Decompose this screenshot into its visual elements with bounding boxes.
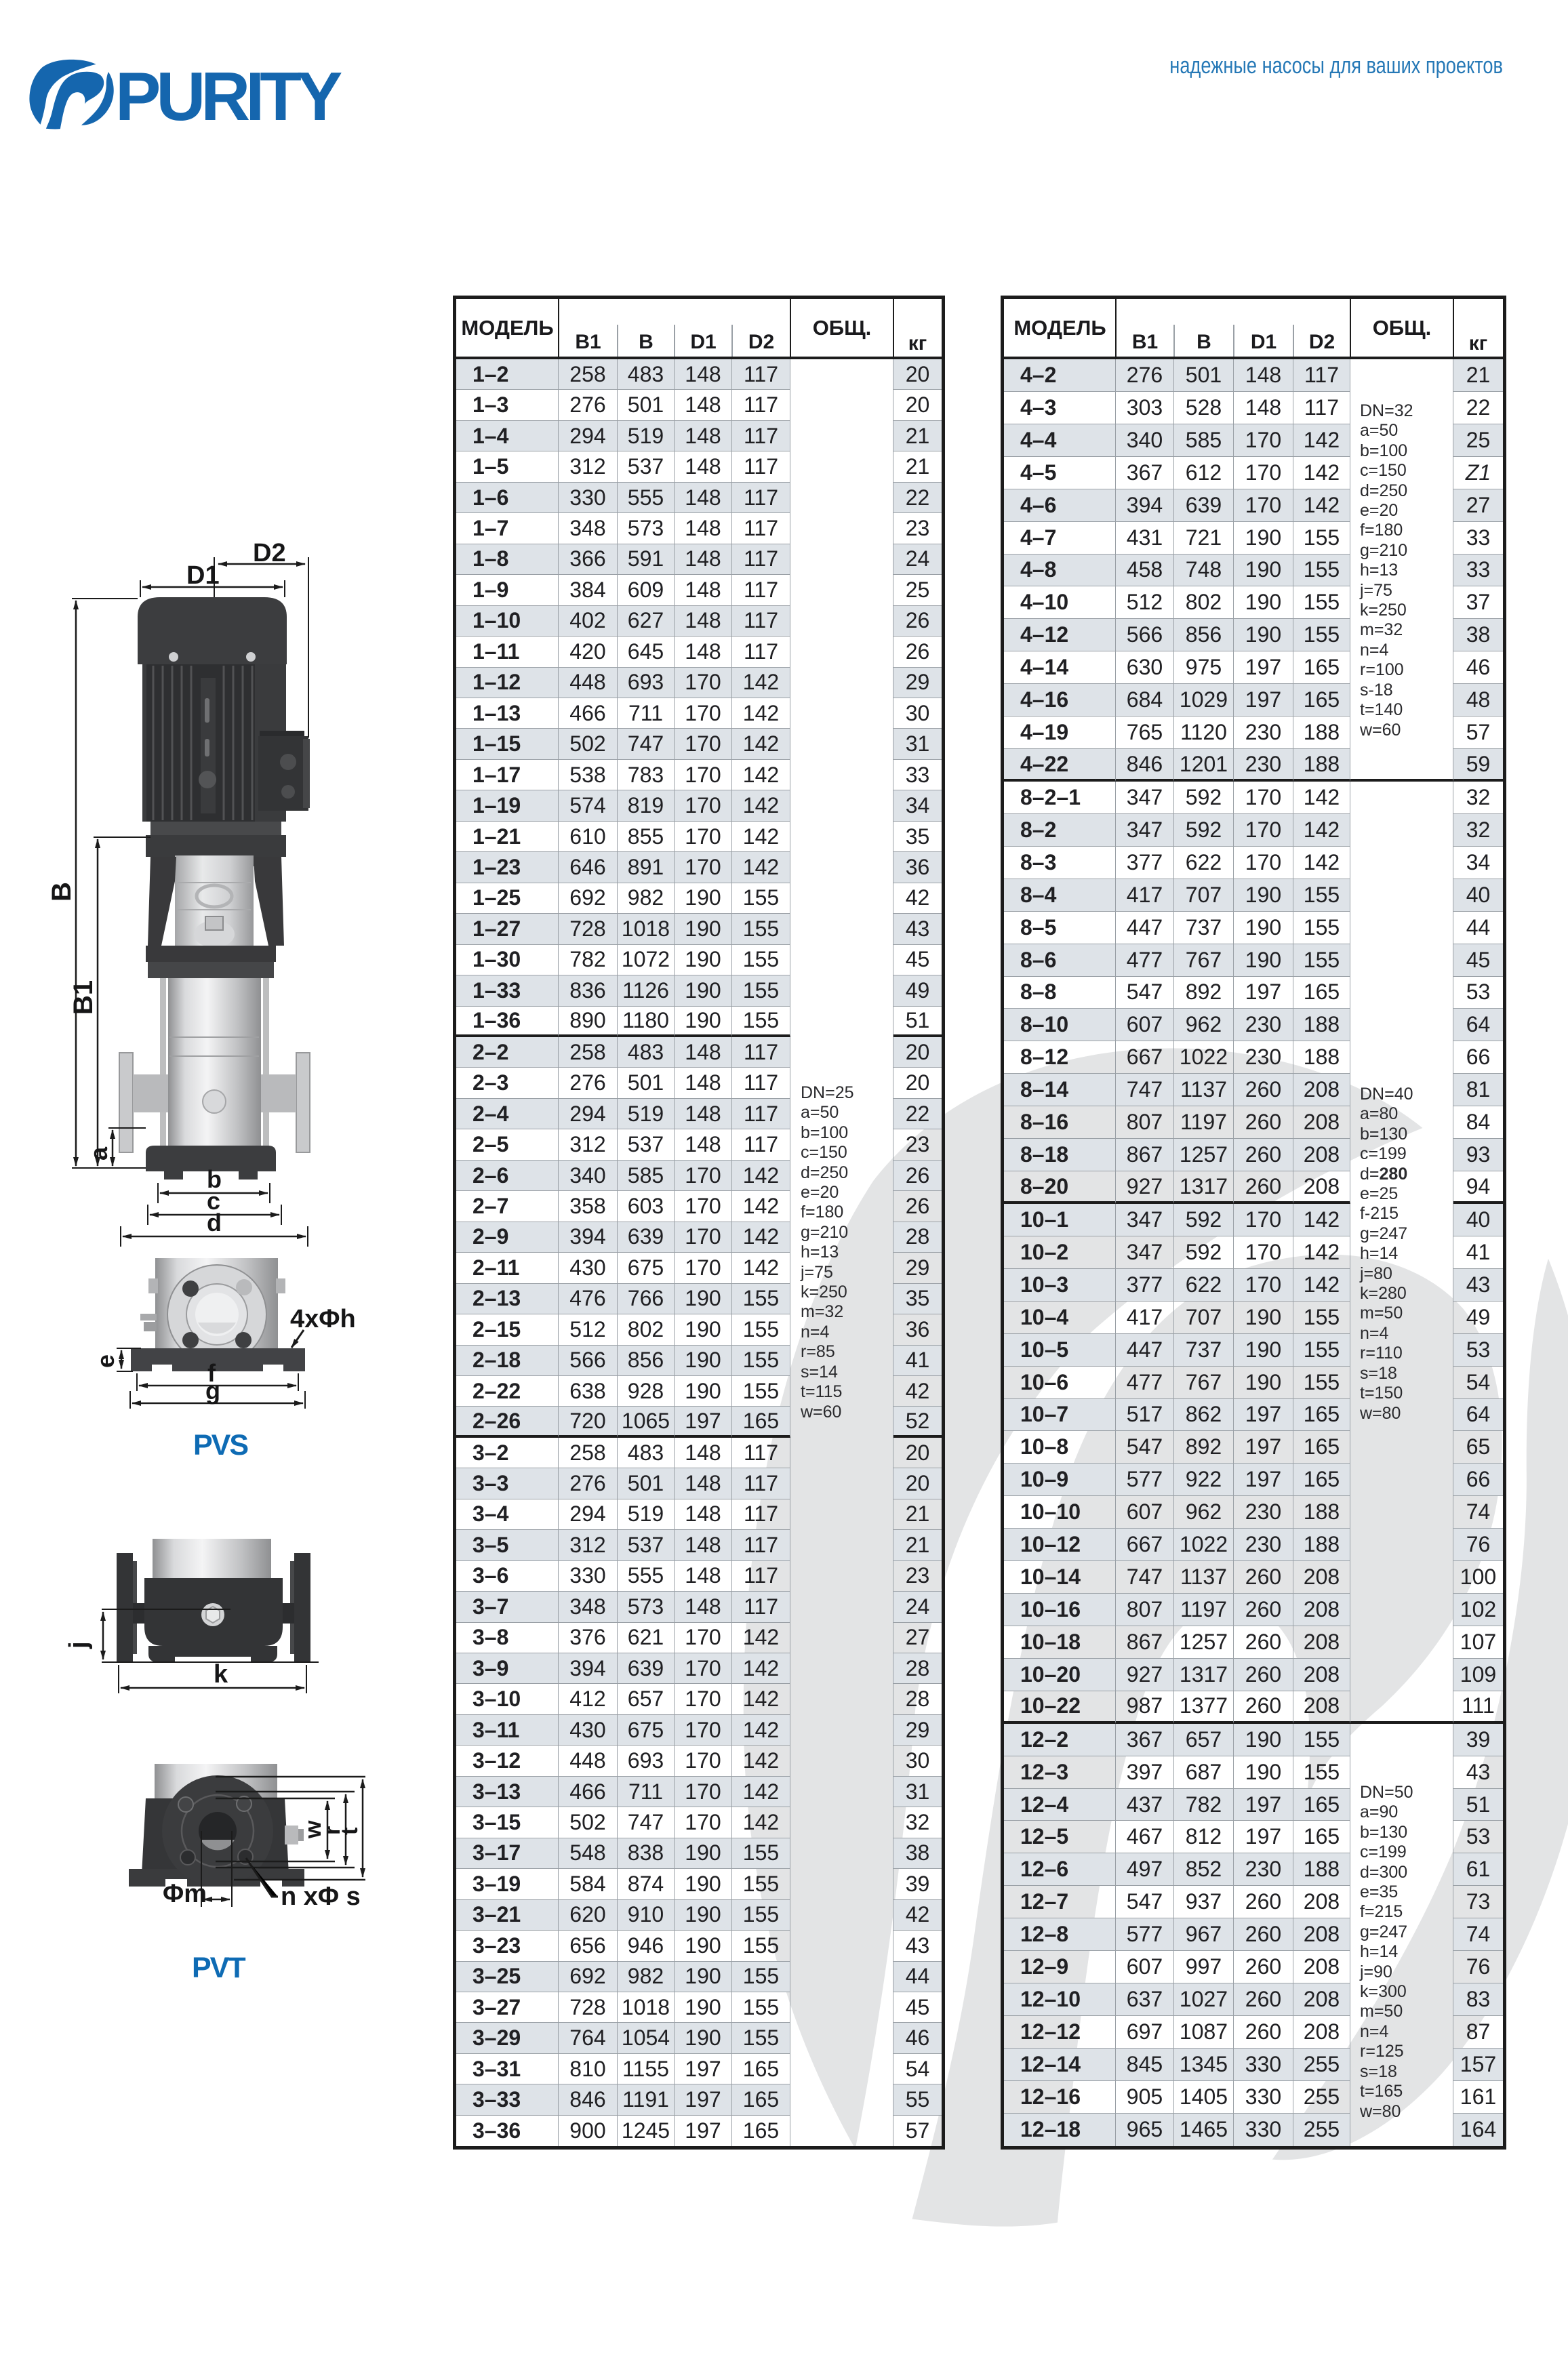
svg-text:j: j bbox=[64, 1641, 93, 1649]
svg-text:PVS: PVS bbox=[193, 1429, 247, 1461]
svg-text:a: a bbox=[85, 1146, 113, 1161]
svg-text:g: g bbox=[205, 1377, 220, 1405]
svg-text:t: t bbox=[337, 1828, 363, 1835]
svg-text:k: k bbox=[214, 1660, 228, 1689]
svg-text:D1: D1 bbox=[186, 561, 220, 590]
svg-text:4xΦh: 4xΦh bbox=[290, 1305, 356, 1333]
svg-text:B1: B1 bbox=[68, 980, 98, 1015]
svg-text:PVT: PVT bbox=[192, 1952, 245, 1984]
svg-text:n xΦ s: n xΦ s bbox=[281, 1882, 361, 1911]
svg-text:Φm: Φm bbox=[163, 1880, 207, 1908]
svg-text:e: e bbox=[92, 1354, 119, 1368]
svg-text:D2: D2 bbox=[253, 539, 286, 567]
svg-text:B: B bbox=[47, 882, 77, 902]
svg-text:d: d bbox=[207, 1209, 222, 1236]
